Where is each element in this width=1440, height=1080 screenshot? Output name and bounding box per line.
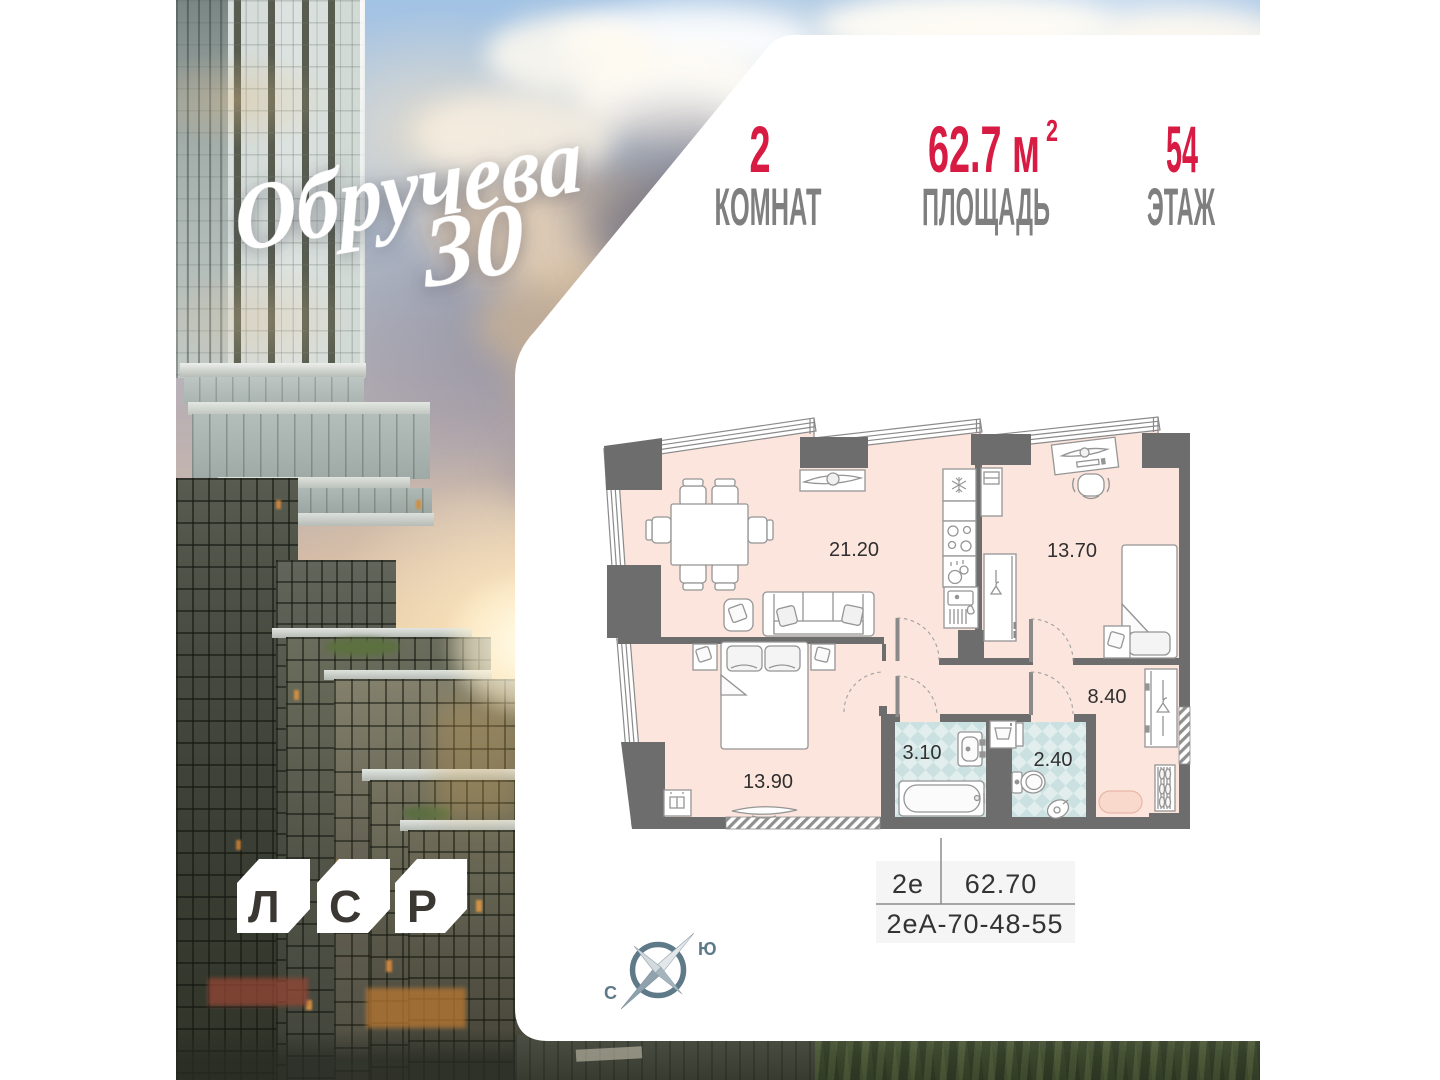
svg-text:30: 30 — [419, 181, 528, 310]
svg-text:3.10: 3.10 — [903, 742, 942, 764]
svg-text:ЭТАЖ: ЭТАЖ — [1147, 178, 1215, 237]
svg-text:С: С — [329, 881, 362, 932]
svg-text:13.70: 13.70 — [1047, 540, 1097, 562]
svg-text:13.90: 13.90 — [743, 771, 793, 793]
svg-text:Р: Р — [407, 881, 437, 932]
svg-text:62.70: 62.70 — [965, 869, 1038, 899]
svg-text:Обручева: Обручева — [231, 105, 585, 272]
svg-text:2: 2 — [750, 112, 771, 186]
svg-text:ПЛОЩАДЬ: ПЛОЩАДЬ — [922, 178, 1050, 237]
svg-text:62.7 м: 62.7 м — [928, 112, 1040, 186]
svg-text:2.40: 2.40 — [1034, 749, 1073, 771]
svg-text:Ю: Ю — [698, 939, 717, 959]
svg-text:С: С — [604, 983, 617, 1003]
svg-text:21.20: 21.20 — [829, 539, 879, 561]
svg-text:8.40: 8.40 — [1088, 686, 1127, 708]
svg-text:2е: 2е — [892, 869, 924, 899]
svg-text:2: 2 — [1046, 113, 1058, 148]
svg-text:2еА-70-48-55: 2еА-70-48-55 — [886, 909, 1063, 939]
svg-text:КОМНАТ: КОМНАТ — [715, 178, 822, 237]
svg-text:Л: Л — [248, 881, 280, 932]
svg-text:54: 54 — [1166, 112, 1198, 186]
